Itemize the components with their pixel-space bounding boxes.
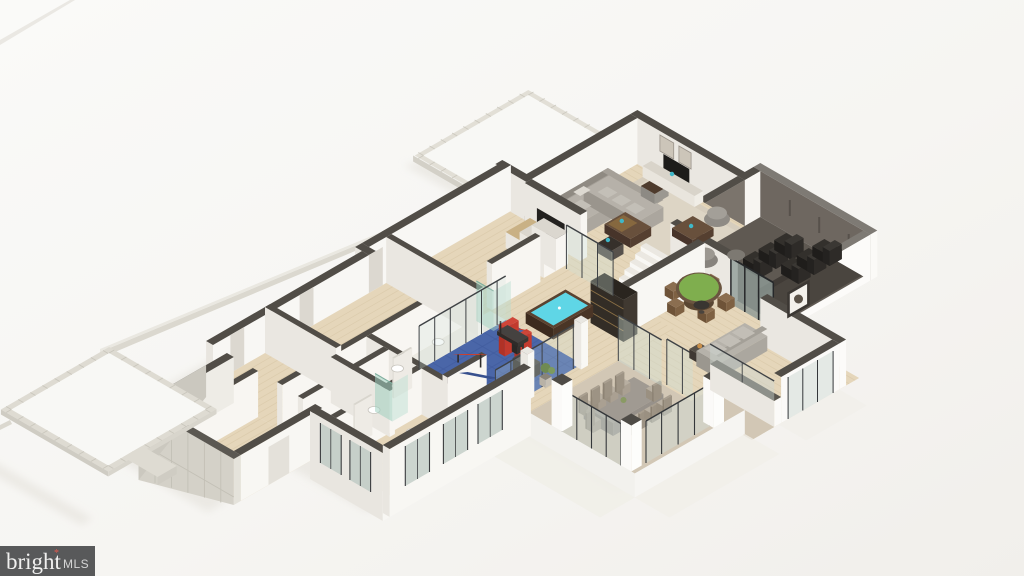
svg-text:*: * <box>54 548 59 559</box>
svg-text:MLS: MLS <box>63 557 89 571</box>
